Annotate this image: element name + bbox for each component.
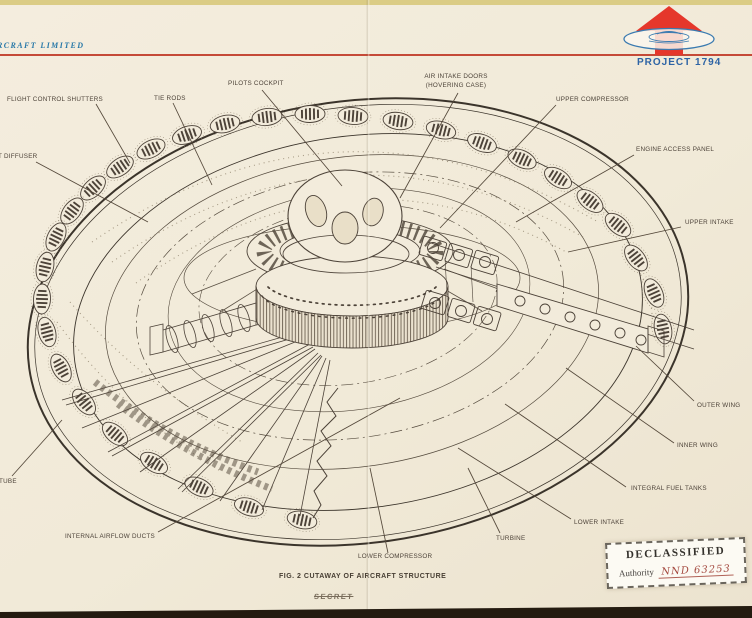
authority-number: NND 63253 (658, 563, 734, 578)
callout-internal-airflow-ducts: INTERNAL AIRFLOW DUCTS (65, 533, 155, 542)
declassified-stamp: DECLASSIFIED Authority NND 63253 (605, 537, 747, 589)
callout-tie-rods: TIE RODS (154, 95, 186, 104)
callout-pilots-cockpit: PILOTS COCKPIT (228, 80, 284, 89)
callout-lower-intake: LOWER INTAKE (574, 519, 624, 528)
callout-upper-intake: UPPER INTAKE (685, 219, 734, 228)
figure-caption: FIG. 2 CUTAWAY OF AIRCRAFT STRUCTURE (279, 573, 446, 580)
callout-engine-access-panel: ENGINE ACCESS PANEL (636, 146, 714, 155)
compressor-drum (256, 256, 448, 348)
callout-outer-wing: OUTER WING (697, 402, 740, 411)
cutaway-torn-edge (313, 388, 338, 518)
callout-integral-fuel-tanks: INTEGRAL FUEL TANKS (631, 485, 707, 494)
callout-diffuser-partial: T DIFFUSER (0, 153, 37, 162)
callout-flight-control-shutters: FLIGHT CONTROL SHUTTERS (7, 96, 103, 105)
cockpit-window (332, 212, 358, 244)
page-fold-crease (366, 0, 370, 612)
authority-label: Authority (619, 567, 654, 579)
callout-inner-wing: INNER WING (677, 442, 718, 451)
struck-secret-stamp: SECRET (314, 592, 354, 601)
declassified-authority-row: Authority NND 63253 (618, 558, 734, 581)
cutaway-diagram (0, 0, 752, 618)
callout-upper-compressor: UPPER COMPRESSOR (556, 96, 629, 105)
callout-tube-partial: TUBE (0, 478, 17, 487)
callout-turbine: TURBINE (496, 535, 525, 544)
scanned-document-page: RCRAFT LIMITED PROJECT 1794 (0, 0, 752, 618)
callout-air-intake-doors: AIR INTAKE DOORS (HOVERING CASE) (408, 73, 504, 91)
